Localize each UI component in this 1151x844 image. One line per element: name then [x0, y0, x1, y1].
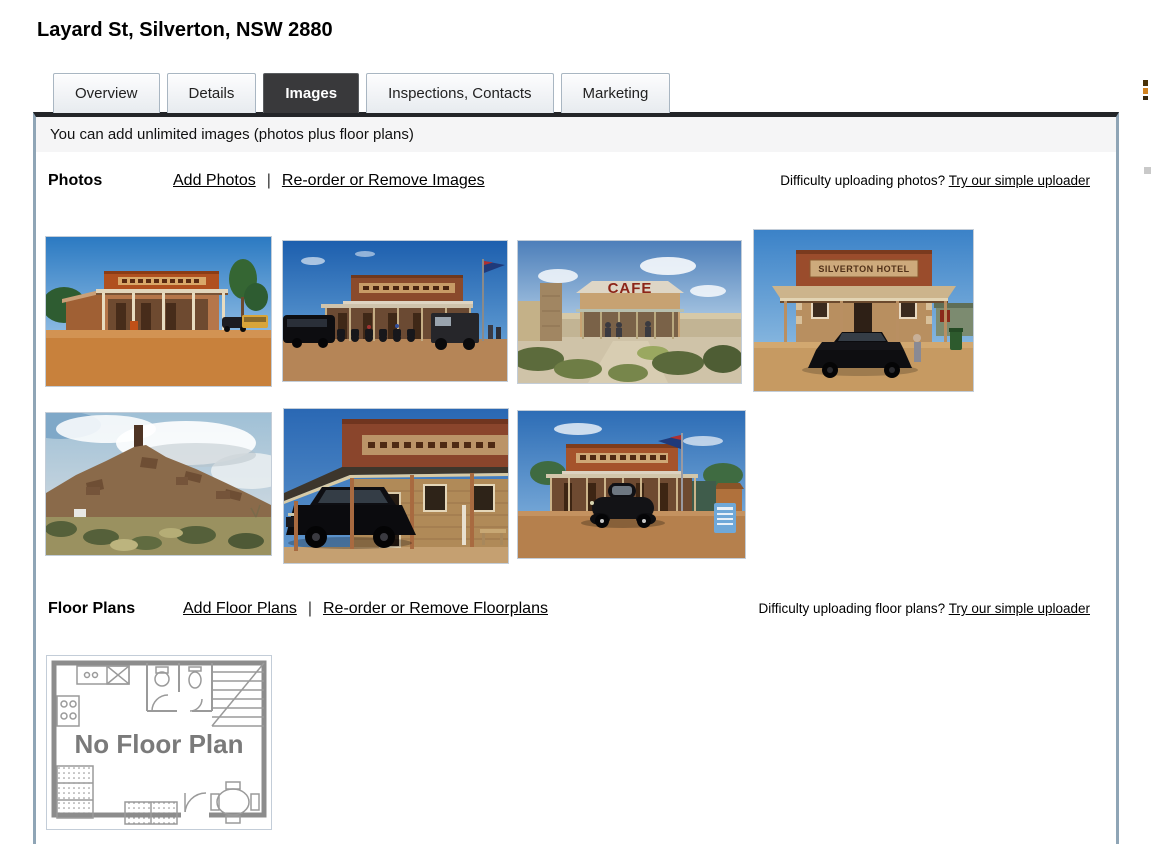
photos-help-text: Difficulty uploading photos?: [780, 173, 945, 188]
links-separator: |: [267, 172, 271, 190]
photo-thumbnail-4[interactable]: SILVERTON HOTEL: [753, 229, 974, 392]
photo-2-image: [283, 241, 507, 381]
photo-thumbnail-7[interactable]: [517, 410, 746, 559]
photo-6-image: [284, 409, 508, 563]
tab-bar: Overview Details Images Inspections, Con…: [53, 73, 677, 113]
unlimited-images-notice: You can add unlimited images (photos plu…: [36, 117, 1116, 152]
photos-simple-uploader-link[interactable]: Try our simple uploader: [949, 173, 1090, 188]
floorplan-thumbnail-1[interactable]: No Floor Plan: [46, 655, 272, 830]
photo-7-image: [518, 411, 745, 558]
tab-inspections-contacts[interactable]: Inspections, Contacts: [366, 73, 553, 113]
floorplans-simple-uploader-link[interactable]: Try our simple uploader: [949, 601, 1090, 616]
listing-images-page: Layard St, Silverton, NSW 2880 Overview …: [0, 0, 1151, 844]
photos-links: Add Photos | Re-order or Remove Images: [173, 172, 485, 190]
floorplans-heading: Floor Plans: [48, 600, 135, 618]
no-floor-plan-label: No Floor Plan: [75, 729, 244, 759]
reorder-remove-images-link[interactable]: Re-order or Remove Images: [282, 172, 485, 190]
photo-4-image: SILVERTON HOTEL: [754, 230, 973, 391]
tab-images[interactable]: Images: [263, 73, 359, 113]
photo-thumbnail-6[interactable]: [283, 408, 509, 564]
photo-thumbnail-5[interactable]: [45, 412, 272, 556]
tab-details[interactable]: Details: [167, 73, 257, 113]
clipped-edge-content: [1143, 80, 1151, 102]
no-floor-plan-image: No Floor Plan: [47, 656, 271, 829]
photo-3-image: CAFE: [518, 241, 741, 383]
photo-5-image: [46, 413, 271, 555]
page-title: Layard St, Silverton, NSW 2880: [37, 19, 333, 42]
photo-thumbnail-1[interactable]: [45, 236, 272, 387]
reorder-remove-floorplans-link[interactable]: Re-order or Remove Floorplans: [323, 600, 548, 618]
tab-marketing[interactable]: Marketing: [561, 73, 671, 113]
photo-4-hotel-sign: SILVERTON HOTEL: [818, 264, 909, 274]
add-photos-link[interactable]: Add Photos: [173, 172, 256, 190]
floorplans-help-text: Difficulty uploading floor plans?: [759, 601, 946, 616]
photo-1-image: [46, 237, 271, 386]
photo-thumbnail-2[interactable]: [282, 240, 508, 382]
photos-heading: Photos: [48, 172, 102, 190]
floorplans-help: Difficulty uploading floor plans? Try ou…: [759, 601, 1090, 616]
floorplans-links: Add Floor Plans | Re-order or Remove Flo…: [183, 600, 548, 618]
tab-overview[interactable]: Overview: [53, 73, 160, 113]
links-separator: |: [308, 600, 312, 618]
photos-help: Difficulty uploading photos? Try our sim…: [780, 173, 1090, 188]
photo-thumbnail-3[interactable]: CAFE: [517, 240, 742, 384]
clipped-edge-dot: [1144, 167, 1151, 174]
add-floorplans-link[interactable]: Add Floor Plans: [183, 600, 297, 618]
